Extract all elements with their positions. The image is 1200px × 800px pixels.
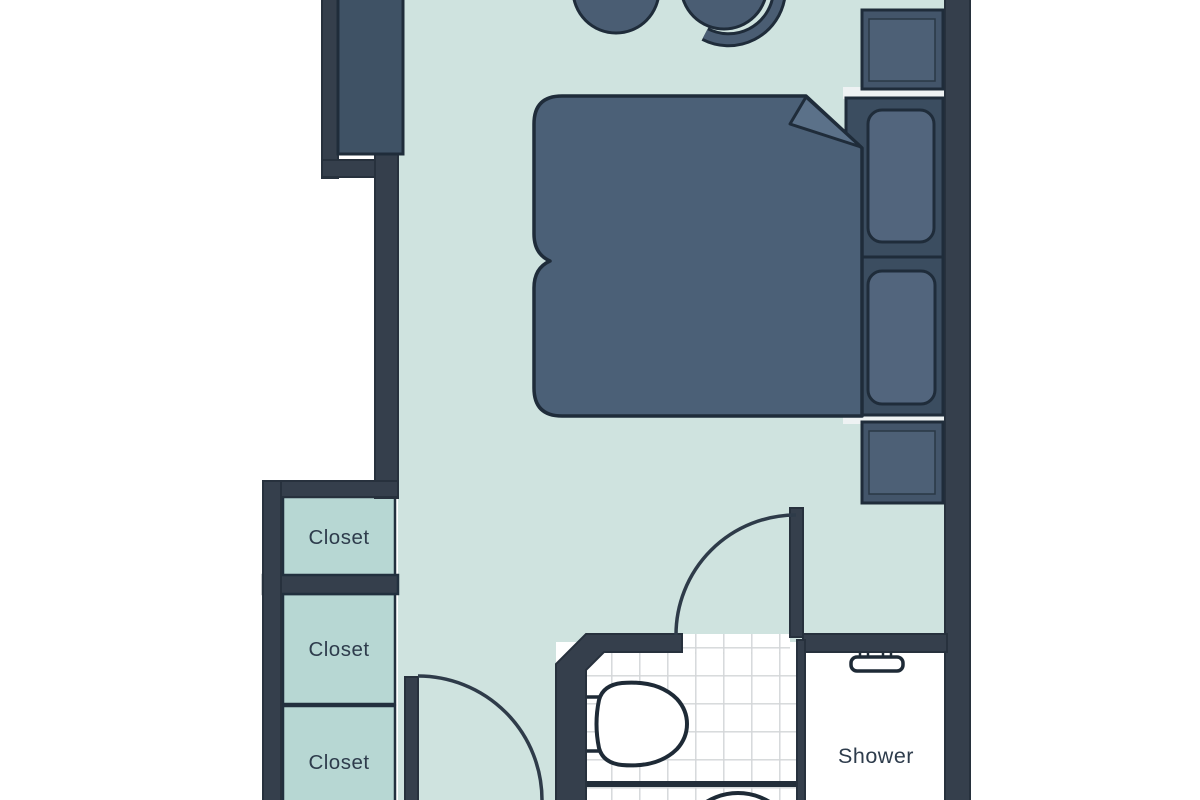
bathroom-door-leaf xyxy=(790,508,803,637)
pillow-bottom xyxy=(868,271,935,404)
closet-top-label: Closet xyxy=(308,526,369,549)
closet-divider-wall xyxy=(263,575,398,594)
bathroom-threshold-tiles xyxy=(682,634,790,654)
closet-middle-label: Closet xyxy=(308,638,369,661)
wall-left-vertical xyxy=(375,152,398,498)
wall-shower-divider xyxy=(797,640,805,800)
entrance-door-leaf xyxy=(405,677,418,800)
nightstand-top xyxy=(862,10,943,89)
wall-right xyxy=(945,0,970,800)
floor-plan-canvas: Closet Closet Closet Shower xyxy=(0,0,1200,800)
wall-top-left-vertical xyxy=(322,0,338,178)
nightstand-bottom xyxy=(862,422,943,503)
wall-closet-outer xyxy=(263,481,281,800)
toilet-icon xyxy=(586,683,687,766)
closet-bottom-label: Closet xyxy=(308,751,369,774)
bathroom xyxy=(586,634,946,800)
shower-label: Shower xyxy=(838,744,914,768)
wardrobe xyxy=(338,0,403,154)
bathroom-curb xyxy=(586,781,797,787)
wall-closet-top xyxy=(263,481,398,497)
floor-plan-page: Closet Closet Closet Shower xyxy=(0,0,1200,800)
shower-floor xyxy=(804,652,946,800)
wall-bathroom-top-right xyxy=(803,634,947,652)
bed-blanket xyxy=(534,96,862,416)
pillow-top xyxy=(868,110,934,242)
wall-top-left-step xyxy=(322,160,380,177)
